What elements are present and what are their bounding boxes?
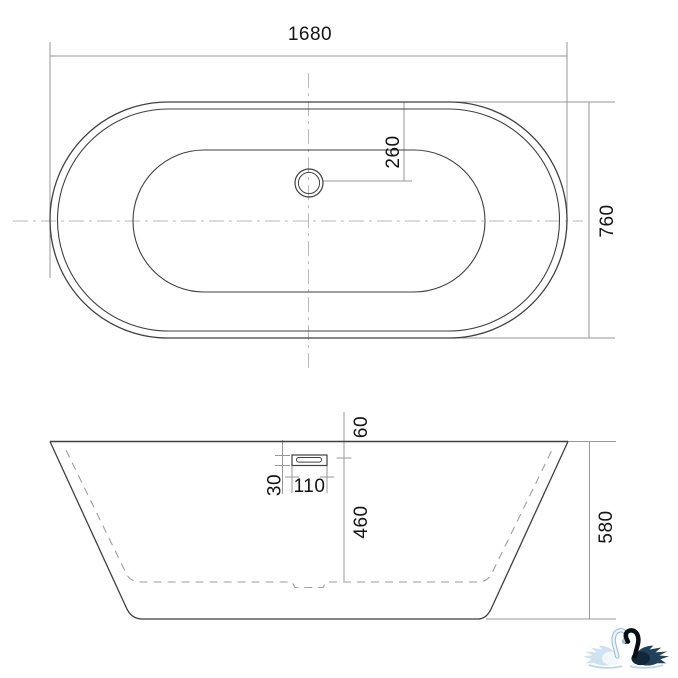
dimension-60-460 (337, 412, 352, 581)
inner-shell-dashed-outline (66, 450, 552, 588)
dim-label-260: 260 (383, 135, 404, 168)
dim-label-580: 580 (596, 510, 617, 543)
two-swans-heart-logo-icon (583, 630, 669, 668)
technical-drawing-page: 1680 260 760 60 30 110 460 580 (0, 0, 678, 678)
dim-label-60: 60 (351, 416, 372, 438)
dim-label-1680: 1680 (288, 24, 332, 45)
dim-label-760: 760 (597, 204, 618, 237)
bathtub-technical-drawing: 1680 260 760 60 30 110 460 580 (0, 0, 678, 678)
dim-label-30: 30 (265, 474, 286, 496)
side-view (50, 442, 568, 620)
dim-label-460: 460 (351, 505, 372, 538)
overflow-fitting (292, 455, 327, 466)
tub-outer-outline-side-view (50, 442, 568, 620)
right-swan-neck (626, 630, 639, 656)
dim-label-110: 110 (294, 476, 326, 497)
